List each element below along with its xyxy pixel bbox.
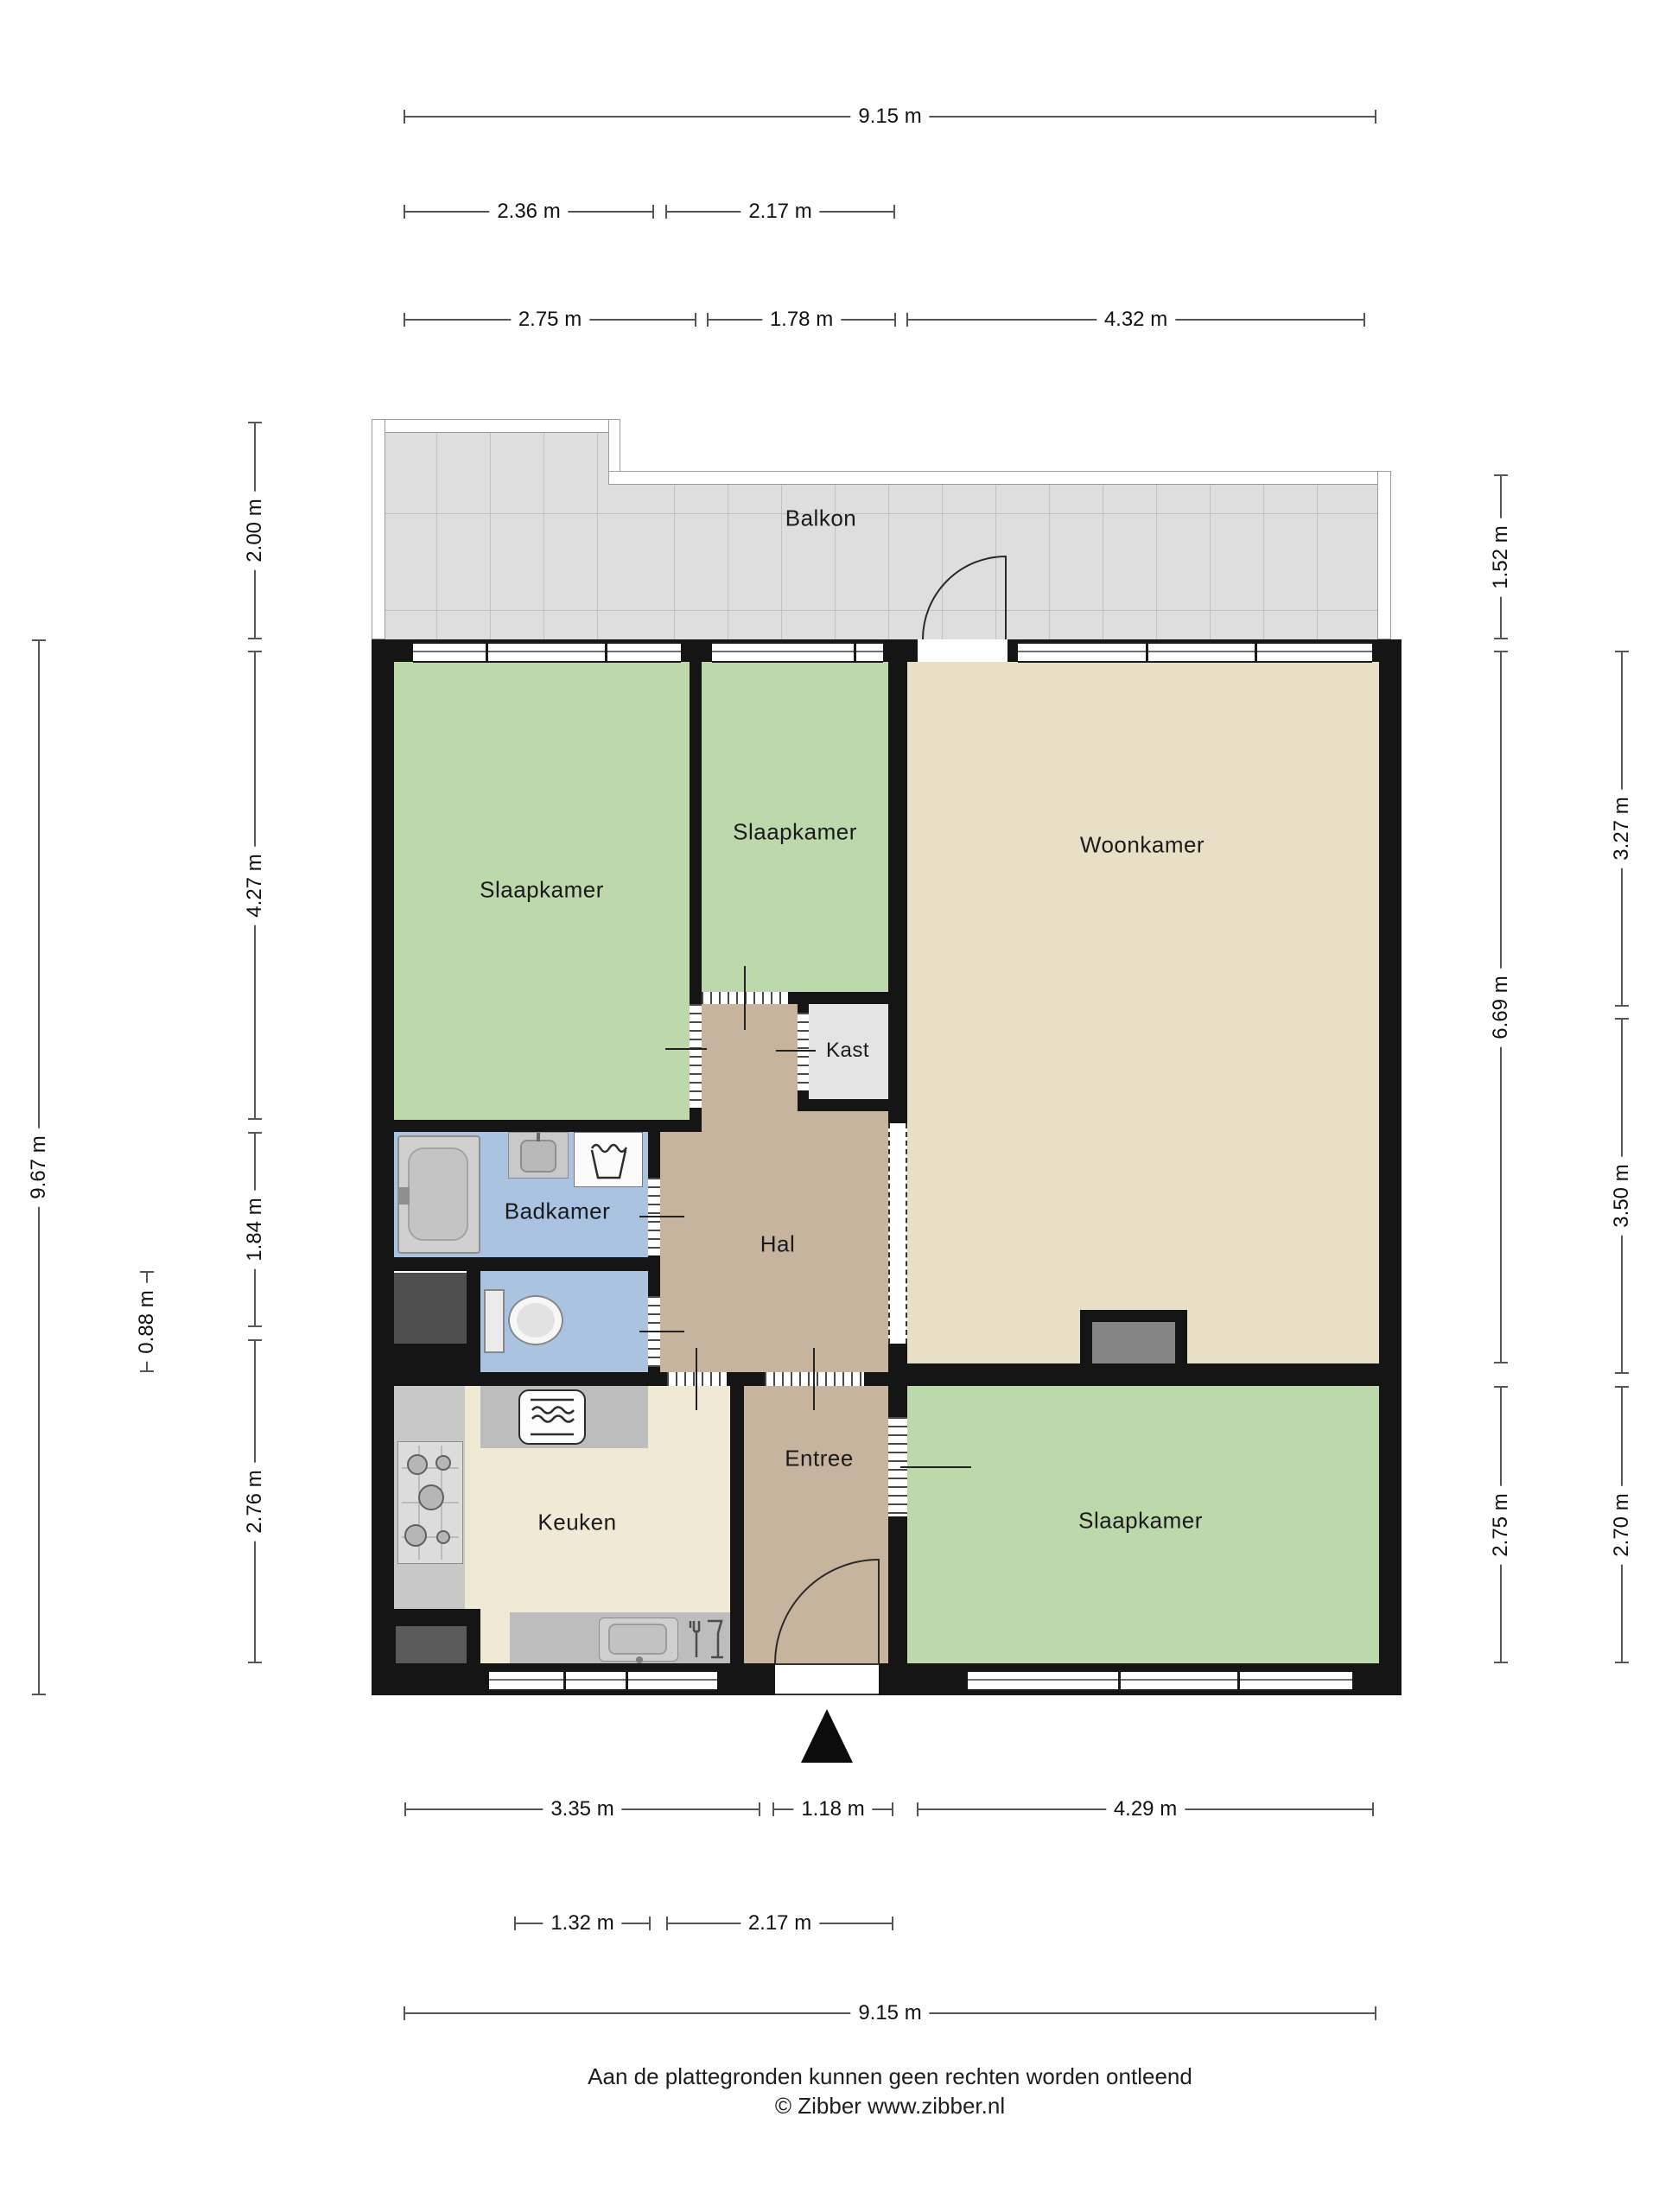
window-mullion bbox=[1237, 1669, 1240, 1689]
toilet-icon-tank bbox=[484, 1289, 505, 1353]
door-swing-tick bbox=[813, 1348, 815, 1410]
window-slaapkamer-bottom bbox=[968, 1670, 1352, 1691]
balcony-grid-line bbox=[543, 433, 544, 639]
door-swing-tick bbox=[639, 1216, 684, 1217]
balcony-grid-line bbox=[436, 433, 437, 639]
balcony-grid-line bbox=[1210, 485, 1211, 639]
wall-toilet-left bbox=[467, 1271, 480, 1386]
sink-icon bbox=[599, 1618, 678, 1662]
door-kast bbox=[798, 1013, 809, 1090]
balcony-grid-line bbox=[1317, 485, 1318, 639]
shaft-niche-bottom bbox=[396, 1626, 467, 1668]
balcony-grid-line bbox=[1049, 485, 1050, 639]
balcony-railing-left bbox=[372, 419, 385, 639]
balcony-grid-line bbox=[385, 513, 1377, 514]
balcony-door-opening bbox=[918, 639, 1007, 662]
washing-machine-icon bbox=[574, 1132, 643, 1187]
room-hal-mid bbox=[702, 1111, 890, 1132]
door-swing-tick bbox=[744, 966, 746, 1030]
window-mullion bbox=[605, 640, 607, 661]
north-arrow-icon bbox=[801, 1709, 853, 1763]
door-swing-tick bbox=[696, 1348, 697, 1410]
room-label-slaapkamer-left: Slaapkamer bbox=[480, 877, 604, 904]
room-label-slaapkamer-bottom: Slaapkamer bbox=[1078, 1508, 1203, 1535]
footer-disclaimer: Aan de plattegronden kunnen geen rechten… bbox=[372, 2063, 1408, 2090]
chimney-inner bbox=[1092, 1322, 1175, 1363]
wall-outer-right bbox=[1379, 639, 1402, 1695]
room-label-kast: Kast bbox=[826, 1039, 869, 1063]
door-swing-tick bbox=[900, 1466, 971, 1468]
room-label-woonkamer: Woonkamer bbox=[1080, 832, 1205, 859]
entrance-door-opening bbox=[775, 1663, 879, 1695]
balcony-floor-left bbox=[385, 433, 620, 639]
room-label-keuken: Keuken bbox=[537, 1510, 616, 1536]
window-woonkamer bbox=[1018, 642, 1372, 663]
shaft-niche-toilet bbox=[394, 1273, 467, 1344]
door-swing-tick bbox=[665, 1048, 707, 1050]
wall-outer-left bbox=[372, 639, 394, 1695]
kitchen-utensils-icon bbox=[689, 1619, 725, 1659]
wall-badkamer-bottom bbox=[394, 1257, 660, 1271]
balcony-railing-top-right bbox=[608, 471, 1391, 485]
wall-kast-bottom bbox=[798, 1099, 907, 1111]
window-slaapkamer-middle bbox=[712, 642, 883, 663]
room-label-entree: Entree bbox=[785, 1446, 854, 1472]
balcony-grid-line bbox=[781, 485, 782, 639]
room-woonkamer bbox=[907, 662, 1379, 1363]
balcony-grid-line bbox=[597, 433, 598, 639]
window-mullion bbox=[1146, 640, 1148, 661]
door-swing-tick bbox=[639, 1331, 684, 1332]
room-label-hal: Hal bbox=[760, 1231, 796, 1258]
room-entree bbox=[744, 1386, 888, 1663]
balcony-grid-line bbox=[942, 485, 943, 639]
wall-toilet-bottom bbox=[394, 1372, 660, 1386]
window-mullion bbox=[626, 1669, 628, 1689]
balcony-grid-line bbox=[674, 485, 675, 639]
balcony-grid-line bbox=[728, 485, 728, 639]
toilet-icon-bowl bbox=[508, 1295, 563, 1345]
footer-copyright: © Zibber www.zibber.nl bbox=[372, 2093, 1408, 2120]
balcony-railing-top-left bbox=[372, 419, 620, 433]
window-mullion bbox=[1118, 1669, 1121, 1689]
balcony-grid-line bbox=[385, 610, 1377, 611]
window-mullion bbox=[486, 640, 488, 661]
wall-woonkamer-bottom bbox=[888, 1363, 1379, 1386]
window-mullion bbox=[1255, 640, 1257, 661]
room-toilet bbox=[480, 1271, 648, 1372]
room-label-balkon: Balkon bbox=[785, 505, 857, 532]
opening-hal-woonkamer bbox=[888, 1123, 907, 1344]
balcony-grid-line bbox=[1156, 485, 1157, 639]
window-keuken bbox=[489, 1670, 717, 1691]
door-swing-tick bbox=[776, 1050, 816, 1052]
window-mullion bbox=[854, 640, 856, 661]
wall-keuken-entree bbox=[730, 1386, 744, 1663]
window-slaapkamer-left bbox=[413, 642, 681, 663]
floorplan-canvas: Balkon bbox=[0, 0, 1659, 2212]
balcony-grid-line bbox=[1263, 485, 1264, 639]
bathtub-icon bbox=[397, 1135, 480, 1254]
room-label-badkamer: Badkamer bbox=[505, 1198, 611, 1225]
balcony-grid-line bbox=[995, 485, 996, 639]
stove-icon bbox=[397, 1441, 463, 1564]
room-label-slaapkamer-middle: Slaapkamer bbox=[733, 819, 857, 846]
washbasin-icon bbox=[508, 1132, 569, 1179]
balcony-railing-right bbox=[1377, 471, 1391, 639]
door-hal-slaapkamer-left bbox=[690, 1004, 702, 1108]
balcony-grid-line bbox=[490, 433, 491, 639]
wall-slaapkamer-left-bottom bbox=[394, 1120, 702, 1132]
window-mullion bbox=[563, 1669, 566, 1689]
balcony-grid-line bbox=[888, 485, 889, 639]
microwave-icon bbox=[518, 1389, 586, 1445]
balcony-grid-line bbox=[1103, 485, 1103, 639]
